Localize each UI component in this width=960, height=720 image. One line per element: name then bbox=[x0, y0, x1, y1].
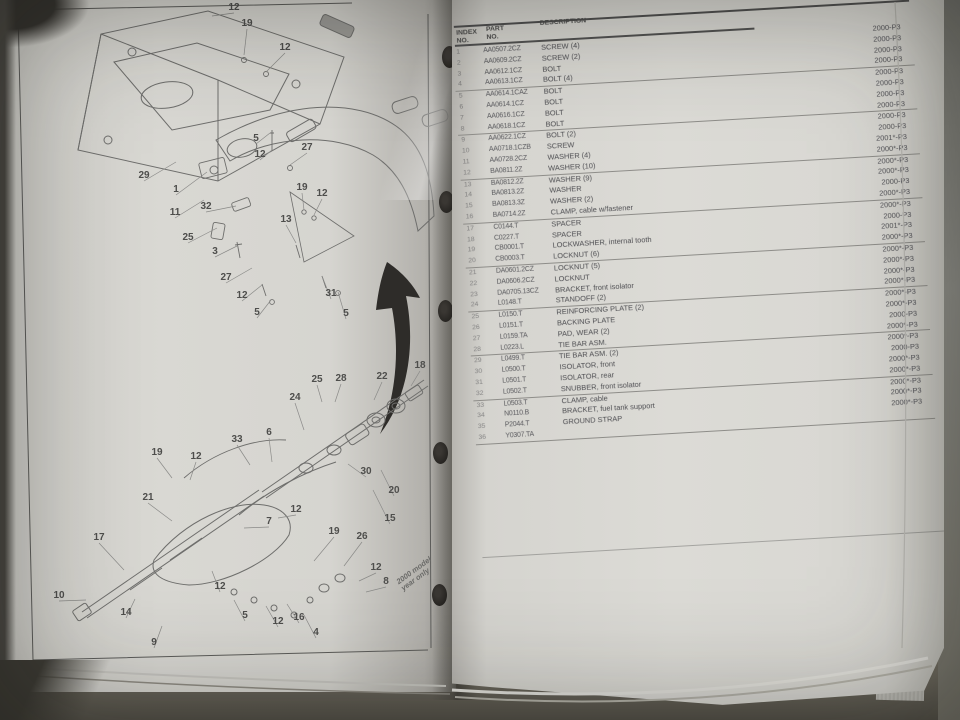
callout-number: 27 bbox=[220, 272, 232, 283]
callout-number: 12 bbox=[214, 581, 226, 592]
row-index-number: 28 bbox=[473, 344, 496, 356]
row-model-year: 2000-P3 bbox=[874, 55, 903, 67]
row-index-number: 24 bbox=[471, 299, 494, 311]
shadow-left-edge bbox=[0, 0, 16, 690]
callout-number: 19 bbox=[151, 447, 163, 458]
row-model-year: 2000*-P3 bbox=[882, 231, 913, 244]
callout-number: 27 bbox=[301, 142, 313, 153]
blank-area-rule bbox=[482, 530, 946, 558]
row-model-year: 2000*-P3 bbox=[889, 363, 920, 376]
parts-table: 2000*-P32000*-P3 INDEX NO. PART NO. DESC… bbox=[452, 3, 953, 589]
callout-number: 19 bbox=[328, 526, 340, 537]
callout-leader bbox=[269, 438, 272, 462]
callout-number: 13 bbox=[280, 214, 292, 225]
binder-ring bbox=[439, 191, 454, 213]
callout-leader bbox=[190, 462, 196, 480]
shadow-bottom-left bbox=[0, 660, 120, 720]
row-model-year: 2000*-P3 bbox=[887, 319, 918, 332]
callout-leader bbox=[295, 403, 304, 430]
callout-leader bbox=[237, 445, 250, 465]
callout-number: 26 bbox=[356, 531, 368, 542]
col-header-part: PART NO. bbox=[486, 25, 505, 41]
callout-number: 5 bbox=[343, 308, 349, 319]
callout-number: 6 bbox=[266, 427, 272, 438]
frame-assembly-drawing bbox=[78, 11, 344, 181]
callout-leader bbox=[366, 587, 386, 592]
left-page: 1219125122729111322531912132712531525282… bbox=[4, 0, 456, 692]
callout-number: 1 bbox=[173, 184, 179, 195]
callout-number: 17 bbox=[93, 532, 105, 543]
row-index-number: 16 bbox=[466, 211, 489, 223]
row-model-year: 2000-P3 bbox=[877, 99, 906, 111]
callout-number: 22 bbox=[376, 371, 388, 382]
row-model-year: 2000*-P3 bbox=[876, 143, 907, 156]
table-rows: 1 AA0507.2CZ SCREW (4) 2000-P3 2 AA0609.… bbox=[453, 21, 935, 445]
callout-number: 10 bbox=[53, 590, 65, 601]
callout-number: 30 bbox=[360, 466, 372, 477]
callout-number: 32 bbox=[200, 201, 212, 212]
row-model-year: 2000*-P3 bbox=[884, 275, 915, 288]
callout-leader bbox=[244, 527, 269, 528]
callout-leader bbox=[359, 573, 376, 581]
callout-number: 15 bbox=[384, 513, 396, 524]
callout-number: 28 bbox=[335, 373, 347, 384]
callout-leader bbox=[244, 29, 247, 55]
callout-number: 25 bbox=[311, 374, 323, 385]
row-part-number: Y0307.TA bbox=[505, 428, 564, 442]
callout-leader bbox=[215, 246, 237, 257]
col-header-description: DESCRIPTION bbox=[540, 17, 587, 27]
callout-leader bbox=[314, 537, 334, 561]
callout-leader bbox=[286, 225, 296, 243]
callout-number: 12 bbox=[290, 504, 302, 515]
callout-number: 12 bbox=[228, 2, 240, 13]
row-index-number: 8 bbox=[460, 123, 483, 135]
callout-number: 33 bbox=[231, 434, 243, 445]
callout-number: 25 bbox=[182, 232, 194, 243]
callout-number: 12 bbox=[190, 451, 202, 462]
callout-number: 8 bbox=[383, 576, 389, 587]
callout-leader bbox=[290, 153, 307, 165]
callout-leader bbox=[344, 542, 362, 566]
callout-number: 19 bbox=[296, 182, 308, 193]
row-index-number: 20 bbox=[468, 255, 491, 267]
callout-number: 12 bbox=[254, 149, 266, 160]
binder-ring bbox=[438, 300, 453, 322]
binder-ring bbox=[432, 584, 447, 606]
binder-ring bbox=[433, 442, 448, 464]
callout-number: 5 bbox=[254, 307, 260, 318]
callout-number: 5 bbox=[253, 133, 259, 144]
row-description: BOLT bbox=[545, 118, 564, 130]
callout-number: 29 bbox=[138, 170, 150, 181]
row-model-year: 2000*-P3 bbox=[879, 187, 910, 200]
callout-leader bbox=[374, 382, 382, 400]
callout-number: 11 bbox=[170, 207, 181, 218]
col-header-index: INDEX NO. bbox=[456, 29, 478, 45]
callout-leader bbox=[148, 503, 172, 521]
callout-number: 12 bbox=[272, 616, 284, 627]
callout-number: 14 bbox=[120, 607, 132, 618]
row-index-number: 4 bbox=[458, 79, 481, 91]
callout-number: 18 bbox=[414, 360, 426, 371]
callout-number: 3 bbox=[212, 246, 218, 257]
row-description: BOLT (4) bbox=[543, 74, 573, 86]
callout-leader bbox=[157, 458, 172, 478]
callout-leader bbox=[314, 199, 322, 215]
callout-number: 7 bbox=[266, 516, 272, 527]
row-index-number: 36 bbox=[478, 432, 501, 444]
callout-number: 5 bbox=[242, 610, 248, 621]
callout-number: 12 bbox=[279, 42, 291, 53]
callout-number: 16 bbox=[293, 612, 305, 623]
callout-number: 4 bbox=[313, 627, 319, 638]
row-index-number: 32 bbox=[476, 388, 499, 400]
callout-number: 12 bbox=[236, 290, 248, 301]
callout-leader bbox=[335, 384, 341, 402]
photo-of-open-parts-manual: 1219125122729111322531912132712531525282… bbox=[0, 0, 960, 720]
lower-tie-bar-assembly-drawing bbox=[72, 380, 428, 621]
right-page: 2000*-P32000*-P3 INDEX NO. PART NO. DESC… bbox=[452, 0, 944, 712]
callout-number: 12 bbox=[316, 188, 328, 199]
row-index-number: 12 bbox=[463, 167, 486, 179]
callout-number: 21 bbox=[142, 492, 154, 503]
callout-number: 24 bbox=[289, 392, 301, 403]
callout-number: 12 bbox=[370, 562, 382, 573]
callout-number: 31 bbox=[325, 288, 337, 299]
callout-number: 19 bbox=[241, 18, 253, 29]
callout-number: 20 bbox=[388, 485, 400, 496]
callout-leader bbox=[99, 543, 124, 570]
callout-number: 9 bbox=[151, 637, 157, 648]
callout-leader bbox=[317, 385, 322, 402]
